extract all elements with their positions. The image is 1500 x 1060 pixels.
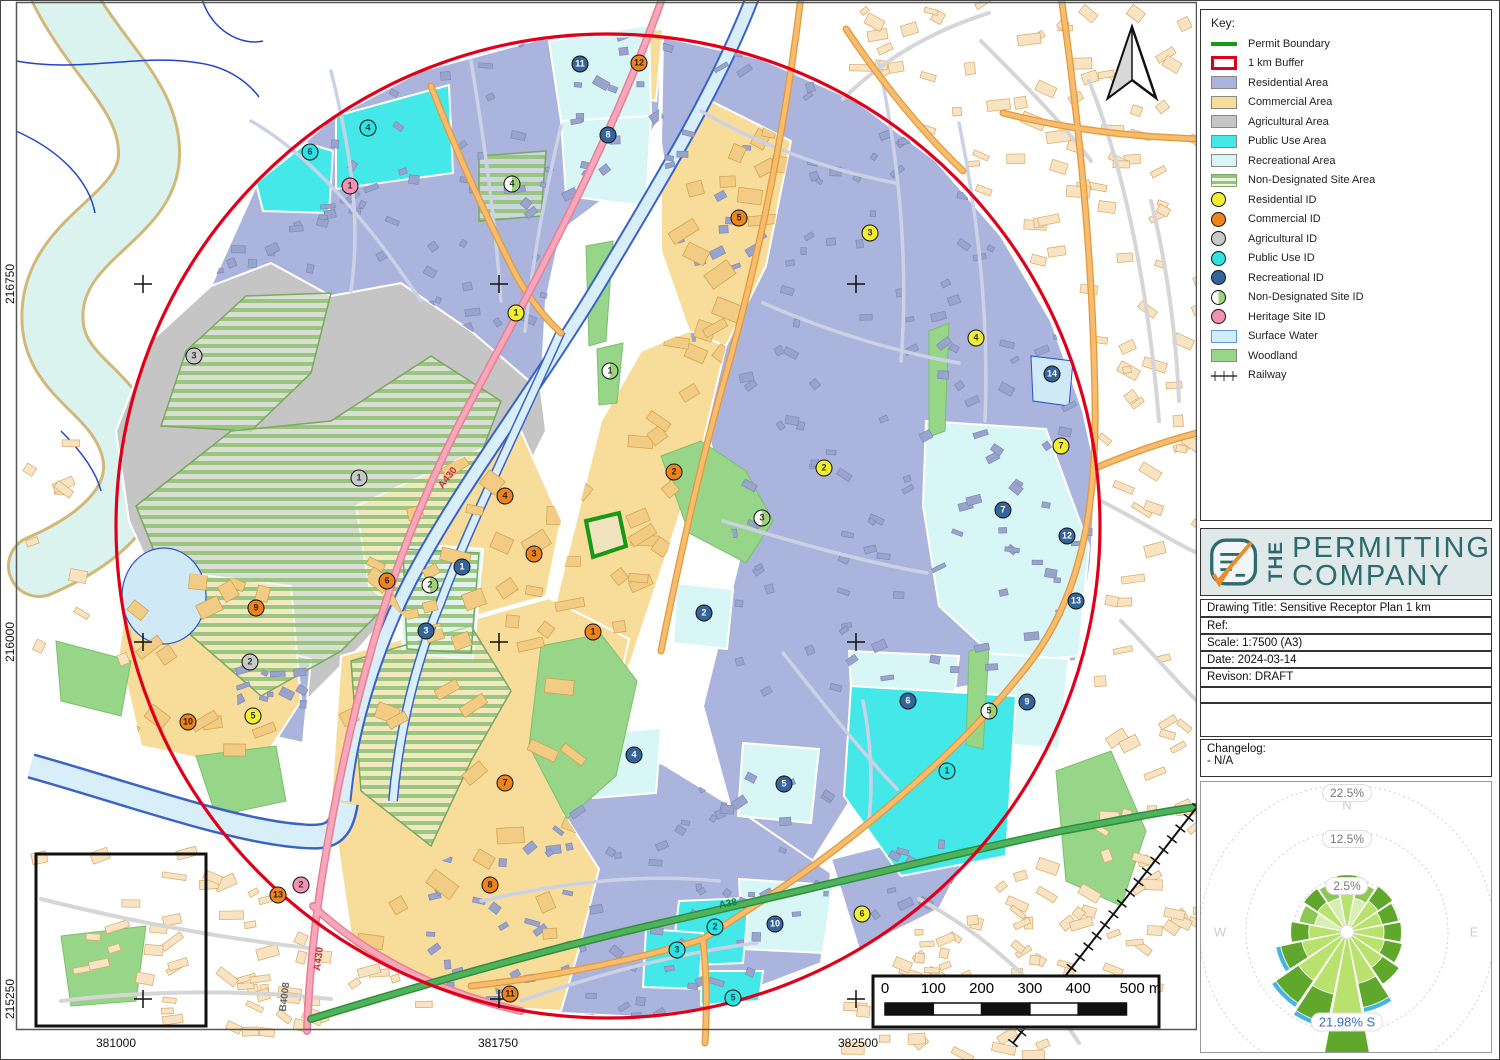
marker-residential-3: 3 [862,225,879,242]
marker-recreational-14: 14 [1044,366,1061,383]
marker-recreational-7: 7 [995,502,1012,519]
map-canvas: 1234567123456789101112131231234561234567… [1,1,1197,1060]
marker-commercial-1: 1 [585,624,602,641]
marker-recreational-6: 6 [900,693,917,710]
legend-swatch-fill [1211,115,1237,128]
wind-rose-box: 2.5%12.5%22.5%NEW21.98% S [1200,781,1492,1053]
legend-item: Agricultural Area [1201,112,1491,132]
grid-label-easting: 382500 [838,1036,878,1050]
marker-recreational-1: 1 [454,559,471,576]
marker-residential-6: 6 [854,906,871,923]
scale-label: 500 m [1120,980,1162,997]
legend-label: Agricultural ID [1248,233,1317,245]
legend-label: Public Use ID [1248,252,1315,264]
grid-label-easting: 381750 [478,1036,518,1050]
title-block-row: Date: 2024-03-14 [1200,651,1492,668]
title-block-row: Drawing Title: Sensitive Receptor Plan 1… [1200,599,1492,617]
marker-public_use-1: 1 [939,763,956,780]
marker-recreational-9: 9 [1019,694,1036,711]
marker-recreational-3: 3 [418,623,435,640]
legend-label: Woodland [1248,350,1297,362]
marker-residential-4: 4 [968,330,985,347]
legend-item: Permit Boundary [1201,34,1491,54]
marker-residential-7: 7 [1053,438,1070,455]
logo-line1: PERMITTING [1292,534,1491,562]
legend-label: Commercial ID [1248,213,1321,225]
legend-item: Commercial Area [1201,93,1491,113]
compass-letter: E [1470,925,1479,940]
legend-title: Key: [1201,10,1491,34]
grid-label-northing: 216750 [3,264,17,304]
marker-commercial-2: 2 [666,464,683,481]
ring-label: 2.5% [1325,877,1368,895]
marker-commercial-13: 13 [270,887,287,904]
legend-label: Agricultural Area [1248,116,1329,128]
marker-public_use-6: 6 [302,144,319,161]
marker-agricultural-3: 3 [186,348,203,365]
marker-non_designated-5: 5 [981,703,998,720]
legend-item: Non-Designated Site Area [1201,171,1491,191]
legend-item: Agricultural ID [1201,229,1491,249]
changelog-title: Changelog: [1207,743,1491,755]
marker-public_use-3: 3 [669,942,686,959]
legend-swatch-fill [1211,154,1237,167]
legend-item: Commercial ID [1201,210,1491,230]
marker-commercial-9: 9 [248,600,265,617]
legend-label: Residential Area [1248,77,1328,89]
legend-item: Recreational Area [1201,151,1491,171]
scale-label: 200 [969,980,994,997]
marker-non_designated-4: 4 [504,176,521,193]
legend-item: 1 km Buffer [1201,54,1491,74]
logo-line2: COMPANY [1292,562,1491,590]
marker-commercial-4: 4 [497,488,514,505]
legend-swatch-circle [1211,309,1226,324]
legend-label: Permit Boundary [1248,38,1330,50]
marker-non_designated-1: 1 [602,363,619,380]
legend-label: Public Use Area [1248,135,1326,147]
pond [122,548,206,644]
marker-recreational-5: 5 [776,776,793,793]
legend-label: Recreational Area [1248,155,1335,167]
marker-recreational-13: 13 [1068,593,1085,610]
legend-label: 1 km Buffer [1248,57,1304,69]
marker-recreational-8: 8 [600,127,617,144]
title-block-empty-box [1200,703,1492,737]
marker-residential-2: 2 [816,460,833,477]
compass-letter: W [1214,925,1226,940]
marker-commercial-10: 10 [180,714,197,731]
marker-heritage-2: 2 [293,877,310,894]
marker-commercial-6: 6 [379,573,396,590]
marker-commercial-5: 5 [731,210,748,227]
legend-swatch-circle [1211,212,1226,227]
company-logo: THE PERMITTING COMPANY [1200,528,1492,596]
legend-items: Permit Boundary1 km BufferResidential Ar… [1201,34,1491,385]
marker-agricultural-1: 1 [351,470,368,487]
marker-residential-1: 1 [508,305,525,322]
logo-the: THE [1266,535,1288,589]
wind-rose [1201,782,1491,1052]
legend-item: Woodland [1201,346,1491,366]
marker-non_designated-2: 2 [422,577,439,594]
legend-item: Railway [1201,366,1491,386]
legend-swatch-fill [1211,135,1237,148]
legend-label: Heritage Site ID [1248,311,1326,323]
legend-label: Surface Water [1248,330,1318,342]
legend-label: Commercial Area [1248,96,1332,108]
marker-recreational-12: 12 [1059,528,1076,545]
marker-public_use-5: 5 [725,990,742,1007]
marker-agricultural-2: 2 [242,654,259,671]
legend-swatch-fill-border [1211,330,1237,343]
legend-label: Recreational ID [1248,272,1324,284]
legend-swatch-fill [1211,349,1237,362]
legend-item: Public Use Area [1201,132,1491,152]
legend-swatch-rect-outline [1211,56,1237,70]
legend-item: Public Use ID [1201,249,1491,269]
base-map-svg [1,1,1197,1060]
legend-item: Residential ID [1201,190,1491,210]
changelog-box: Changelog: - N/A [1200,739,1492,777]
legend-swatch-circle [1211,270,1226,285]
title-block-empty-row [1200,687,1492,703]
grid-label-northing: 216000 [3,622,17,662]
plan-sheet: 1234567123456789101112131231234561234567… [0,0,1500,1060]
title-block-row: Ref: [1200,617,1492,634]
legend-swatch-circle [1211,231,1226,246]
legend-swatch-stripes [1211,174,1237,187]
changelog-entry: - N/A [1207,755,1491,767]
marker-commercial-8: 8 [482,877,499,894]
logo-name: PERMITTING COMPANY [1292,534,1491,591]
legend-item: Non-Designated Site ID [1201,288,1491,308]
logo-leaf-icon [1207,534,1260,590]
legend-label: Non-Designated Site ID [1248,291,1364,303]
marker-commercial-11: 11 [502,986,519,1003]
marker-residential-5: 5 [245,708,262,725]
scale-bar [873,976,1159,1027]
marker-public_use-4: 4 [360,120,377,137]
legend-swatch-railway [1211,369,1237,382]
marker-recreational-2: 2 [696,605,713,622]
legend-label: Railway [1248,369,1287,381]
legend-item: Recreational ID [1201,268,1491,288]
legend-swatch-fill [1211,96,1237,109]
scale-label: 300 [1017,980,1042,997]
marker-recreational-10: 10 [767,916,784,933]
side-panel: Key: Permit Boundary1 km BufferResidenti… [1197,1,1500,1060]
legend-swatch-circle-half [1211,290,1226,305]
marker-commercial-3: 3 [526,546,543,563]
scale-label: 0 [881,980,889,997]
scale-label: 100 [921,980,946,997]
legend-item: Surface Water [1201,327,1491,347]
title-block-row: Revison: DRAFT [1200,668,1492,687]
legend-item: Residential Area [1201,73,1491,93]
legend-swatch-circle [1211,251,1226,266]
dominant-direction-label: 21.98% S [1311,1013,1383,1032]
legend-label: Non-Designated Site Area [1248,174,1375,186]
marker-public_use-2: 2 [707,919,724,936]
legend-swatch-fill [1211,76,1237,89]
ring-label: 12.5% [1322,830,1372,848]
marker-heritage-1: 1 [342,178,359,195]
grid-label-northing: 215250 [3,979,17,1019]
marker-recreational-11: 11 [572,56,589,73]
legend-swatch-circle [1211,192,1226,207]
title-block-row: Scale: 1:7500 (A3) [1200,634,1492,651]
grid-label-easting: 381000 [96,1036,136,1050]
legend-item: Heritage Site ID [1201,307,1491,327]
marker-non_designated-3: 3 [754,510,771,527]
ring-label: 22.5% [1322,784,1372,802]
legend-box: Key: Permit Boundary1 km BufferResidenti… [1200,9,1492,521]
marker-commercial-12: 12 [631,55,648,72]
legend-label: Residential ID [1248,194,1316,206]
legend-swatch-line [1211,42,1237,46]
marker-commercial-7: 7 [497,775,514,792]
scale-label: 400 [1066,980,1091,997]
marker-recreational-4: 4 [626,747,643,764]
